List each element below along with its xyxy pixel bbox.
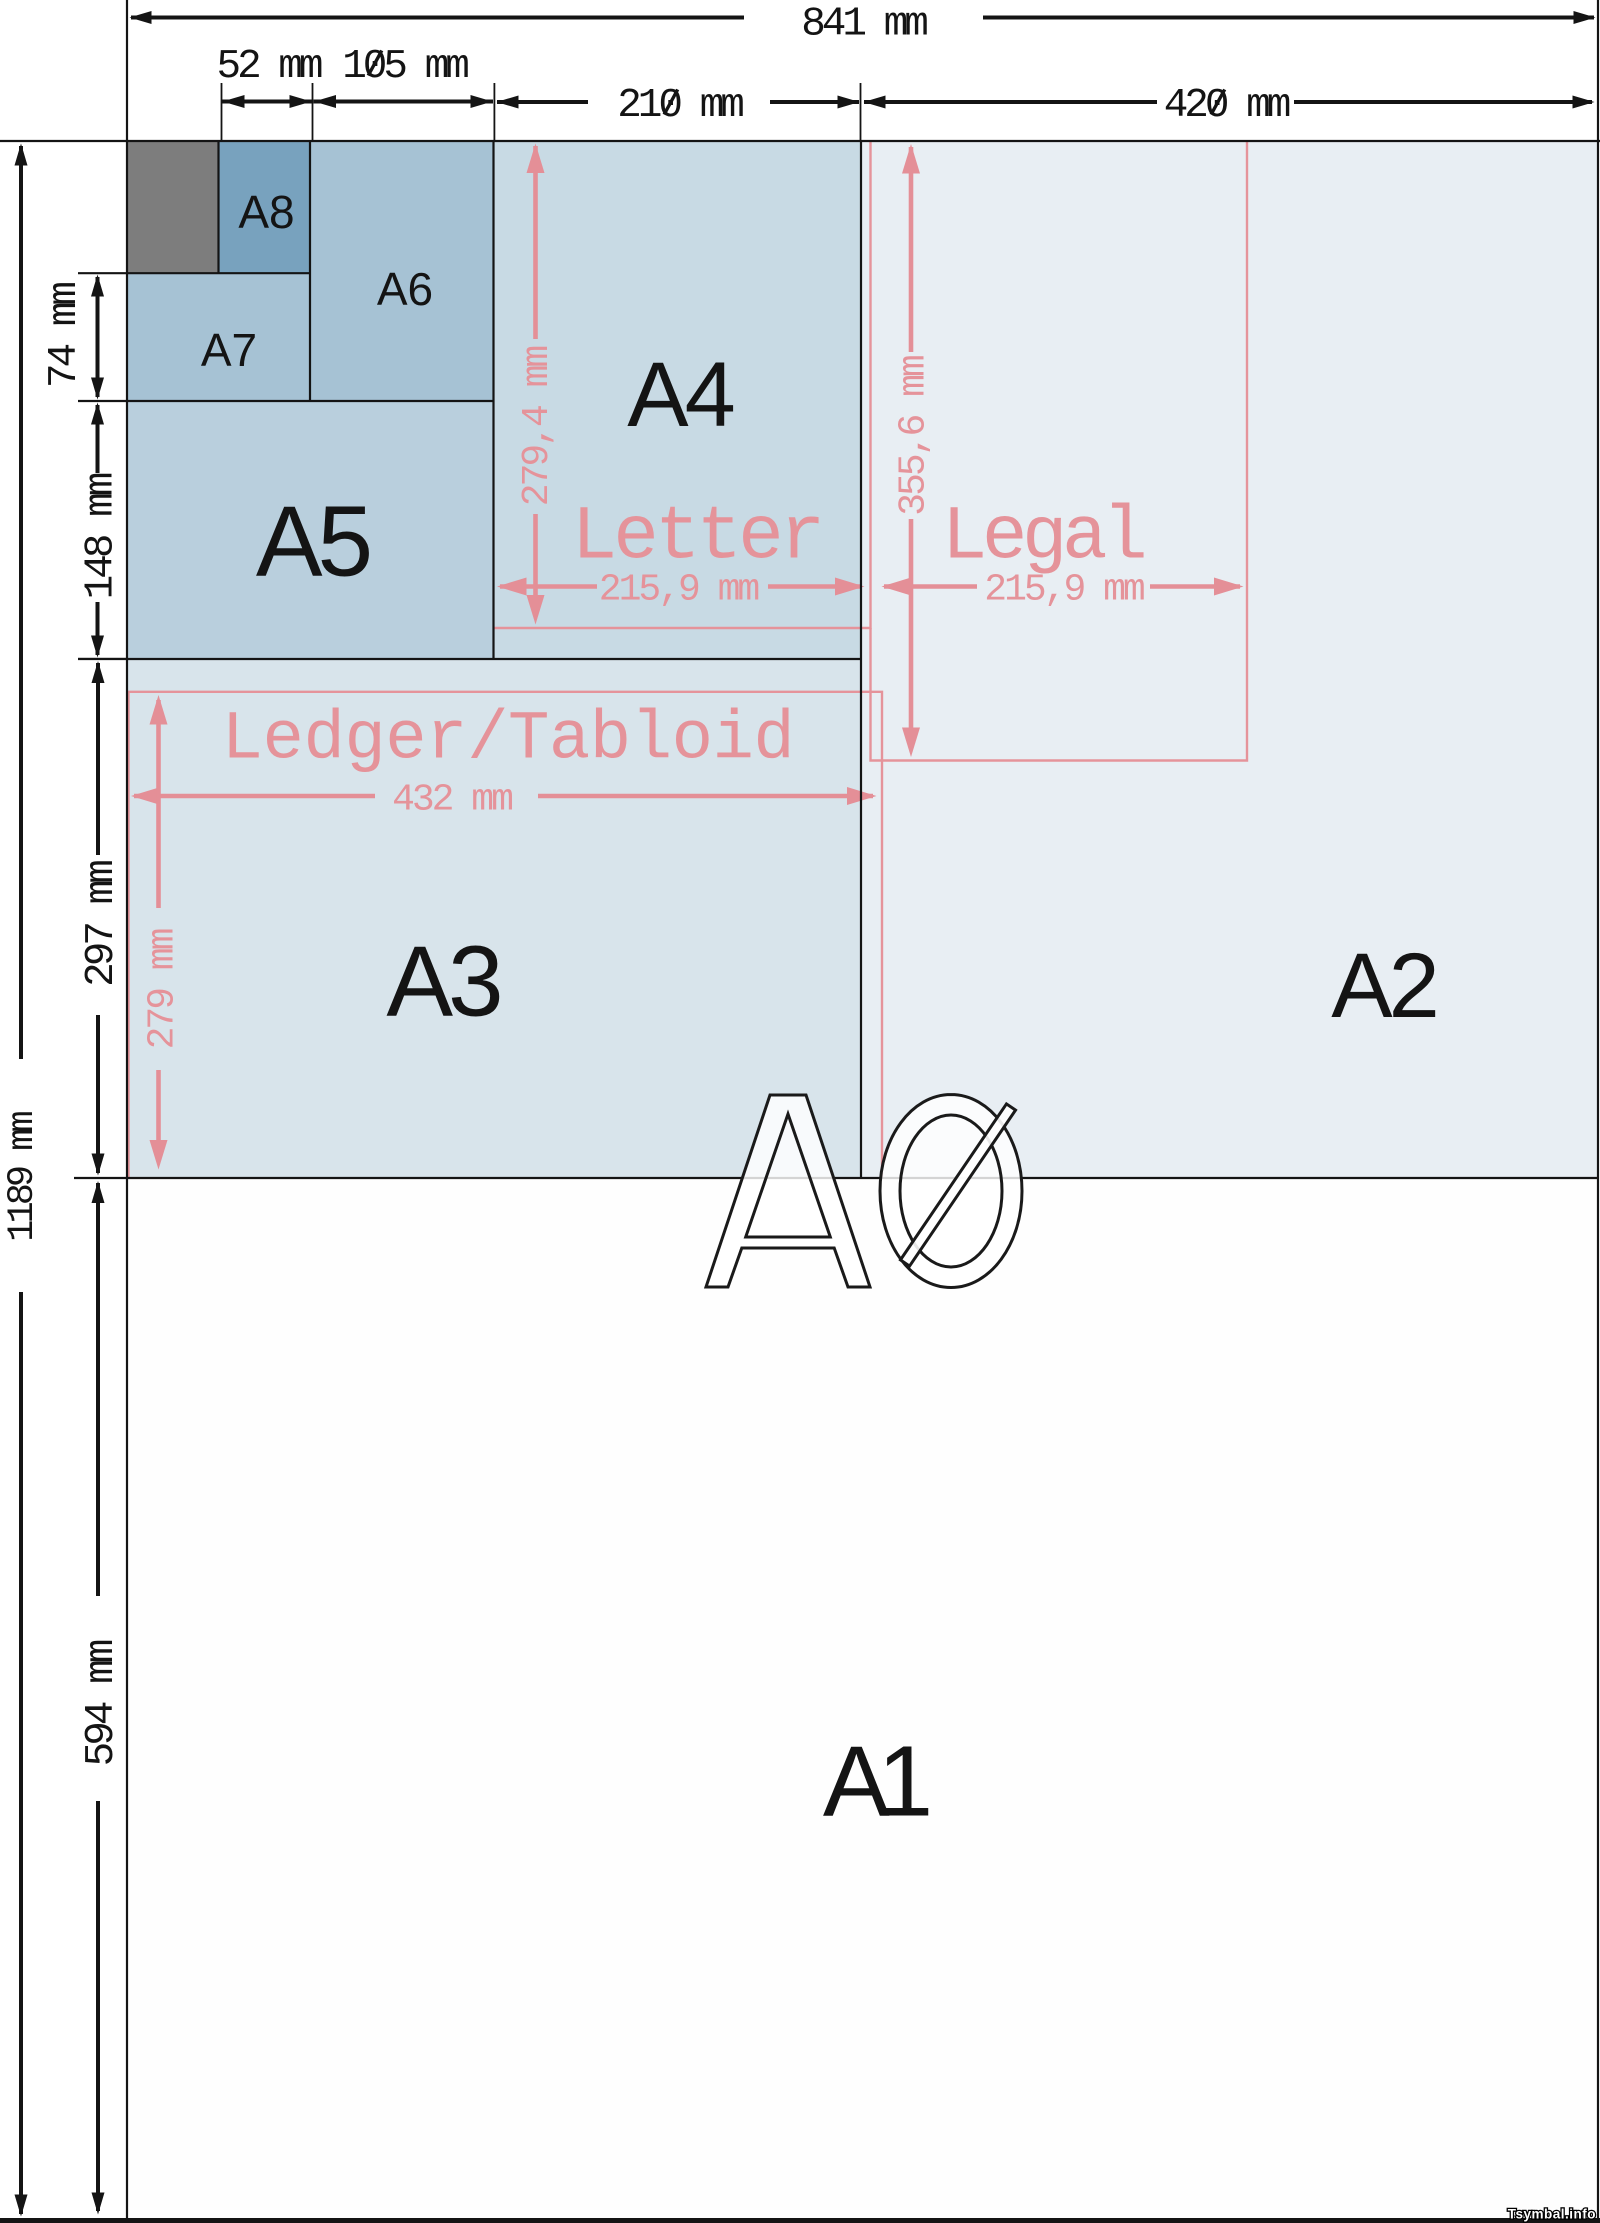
svg-text:420 mm: 420 mm [1164,83,1290,129]
svg-text:Ledger/Tabloid: Ledger/Tabloid [222,701,795,779]
svg-text:279,4 mm: 279,4 mm [516,347,559,507]
svg-text:594 mm: 594 mm [79,1640,125,1766]
svg-text:A3: A3 [386,926,500,1038]
svg-text:1189 mm: 1189 mm [2,1111,44,1241]
svg-text:105 mm: 105 mm [342,44,468,90]
svg-text:74 mm: 74 mm [42,283,88,388]
svg-text:355,6 mm: 355,6 mm [893,356,936,516]
svg-text:A4: A4 [627,344,733,446]
svg-text:A2: A2 [1331,935,1436,1037]
svg-text:A7: A7 [201,324,257,376]
svg-text:279 mm: 279 mm [142,929,185,1049]
svg-text:148 mm: 148 mm [79,473,125,599]
svg-text:A1: A1 [823,1726,929,1838]
svg-text:432 mm: 432 mm [392,779,512,822]
svg-text:Tsymbal.info: Tsymbal.info [1508,2207,1596,2222]
svg-text:841 mm: 841 mm [801,2,927,48]
svg-text:Legal: Legal [942,495,1144,581]
svg-text:52 mm: 52 mm [216,44,321,90]
svg-text:A5: A5 [256,486,370,598]
svg-text:Letter: Letter [572,495,822,581]
svg-text:297 mm: 297 mm [79,861,125,987]
svg-text:A6: A6 [377,263,433,315]
svg-text:210 mm: 210 mm [617,83,743,129]
svg-text:A8: A8 [238,186,294,238]
